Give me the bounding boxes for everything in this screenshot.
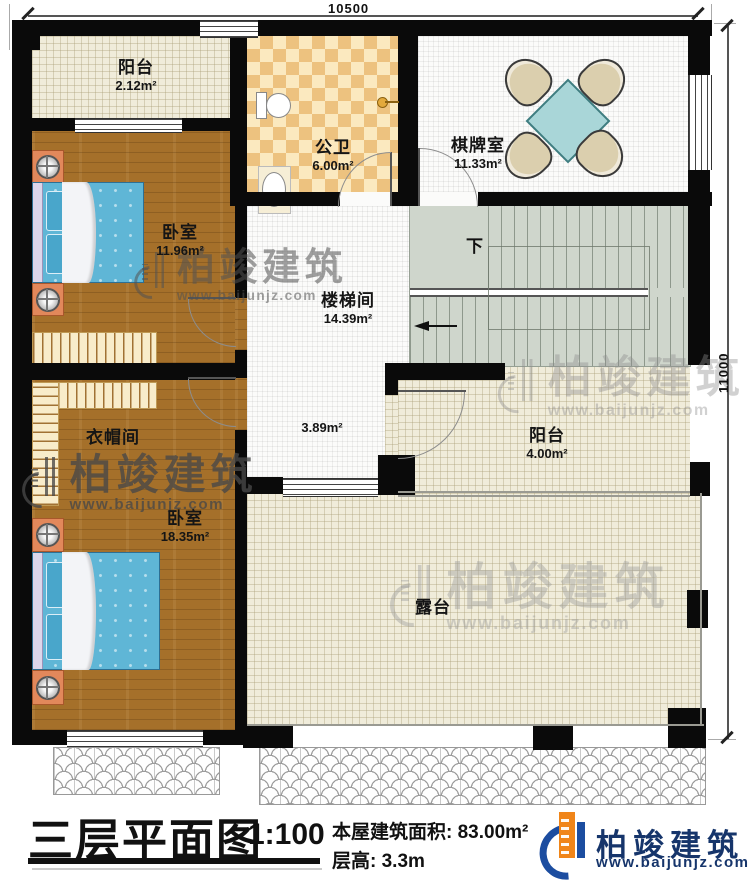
logo-building-orange <box>559 812 575 858</box>
pillar <box>687 590 708 628</box>
stairs-down-label: 下 <box>466 232 483 257</box>
wall-hall-balcony-block <box>378 455 415 495</box>
lamp-icon <box>36 523 60 547</box>
pillar <box>243 726 293 748</box>
dimension-top: 10500 <box>328 1 369 16</box>
wall-bathroom-left <box>230 20 247 206</box>
bed-headboard <box>33 183 43 282</box>
pillar <box>690 462 710 496</box>
lamp-icon <box>36 676 60 700</box>
window <box>200 20 258 38</box>
title-underline <box>28 858 320 864</box>
bed-headboard <box>33 553 43 669</box>
bed-sheet <box>62 552 96 670</box>
dimension-extension <box>9 4 10 50</box>
room-label-hall-area: 3.89m² <box>301 420 342 436</box>
railing-balcony-terrace <box>398 491 690 493</box>
stairs-direction-arrow-tail <box>429 325 457 327</box>
window <box>67 730 203 747</box>
roof-tiles <box>53 747 220 795</box>
double-bed <box>32 182 144 283</box>
stairs-direction-arrow <box>414 321 429 331</box>
wall-right-outer-top <box>688 20 710 75</box>
watermark: 柏竣建筑 www.baijunjz.com <box>498 354 745 419</box>
wall-stairs-balcony <box>398 363 505 380</box>
railing-balcony-terrace <box>398 495 690 497</box>
wall-left-outer <box>12 20 32 745</box>
floor-height-text: 层高: 3.3m <box>332 846 425 873</box>
towel-bar <box>385 101 399 103</box>
railing-terrace-bottom <box>247 724 704 726</box>
room-label-cloakroom: 衣帽间 <box>86 428 140 448</box>
wall-top-outer <box>12 20 712 36</box>
door-opening-cloakroom <box>235 378 247 430</box>
room-label-bedroom2: 卧室 18.35m² <box>161 509 209 545</box>
dimension-extension <box>711 4 712 20</box>
toilet-bowl <box>266 93 291 118</box>
lamp-icon <box>36 288 60 312</box>
railing-terrace-right <box>700 493 702 726</box>
company-website: www.baijunjz.com <box>596 854 749 871</box>
room-label-balcony-top: 阳台 2.12m² <box>115 58 156 94</box>
door-opening-balcony <box>385 395 398 455</box>
wall-hall-balcony-top <box>385 363 398 395</box>
pillar <box>533 726 573 750</box>
dimension-tick <box>691 7 704 20</box>
nightstand <box>32 283 64 316</box>
window <box>75 118 182 133</box>
watermark: 柏竣建筑 www.baijunjz.com <box>390 560 671 633</box>
wardrobe <box>32 332 157 364</box>
door-knob-icon <box>377 97 388 108</box>
company-logo-icon <box>540 810 590 874</box>
wall-chess-bottom <box>478 192 712 206</box>
door-opening-bedroom1 <box>235 298 247 350</box>
wall-bathroom-chess <box>398 20 418 206</box>
watermark-logo-icon <box>22 457 62 510</box>
stairs-well-outline <box>488 246 650 330</box>
logo-building-blue <box>577 822 585 858</box>
watermark-logo-icon <box>390 565 438 628</box>
window-hall-terrace <box>283 478 378 497</box>
room-label-bathroom: 公卫 6.00m² <box>312 138 353 174</box>
cloakroom-wardrobe-top <box>57 382 157 409</box>
dimension-right: 11000 <box>716 353 731 393</box>
room-label-stairwell: 楼梯间 14.39m² <box>321 291 375 327</box>
room-label-terrace: 露台 <box>415 598 451 618</box>
nightstand <box>32 150 64 183</box>
watermark: 柏竣建筑 www.baijunjz.com <box>22 452 258 514</box>
wall-bathroom-bottom <box>230 192 340 206</box>
building-area-text: 本屋建筑面积: 83.00m² <box>332 817 528 844</box>
wall-bathroom-bottom-right <box>392 192 418 206</box>
room-label-bedroom1: 卧室 11.96m² <box>156 223 204 259</box>
drawing-scale: 1:100 <box>248 818 325 852</box>
dimension-tick <box>21 7 34 20</box>
lamp-icon <box>36 155 60 179</box>
room-label-chess: 棋牌室 11.33m² <box>451 136 505 172</box>
bed-sheet <box>62 182 96 283</box>
title-underline-shadow <box>32 868 322 870</box>
window <box>688 75 712 170</box>
floor-plan: 下 <box>0 0 750 887</box>
nightstand <box>32 518 64 552</box>
double-bed <box>32 552 160 670</box>
watermark-logo-icon <box>498 359 540 414</box>
nightstand <box>32 670 64 705</box>
room-label-balcony-south: 阳台 4.00m² <box>526 426 567 462</box>
roof-tiles <box>259 747 706 805</box>
watermark-logo-icon <box>134 252 170 300</box>
